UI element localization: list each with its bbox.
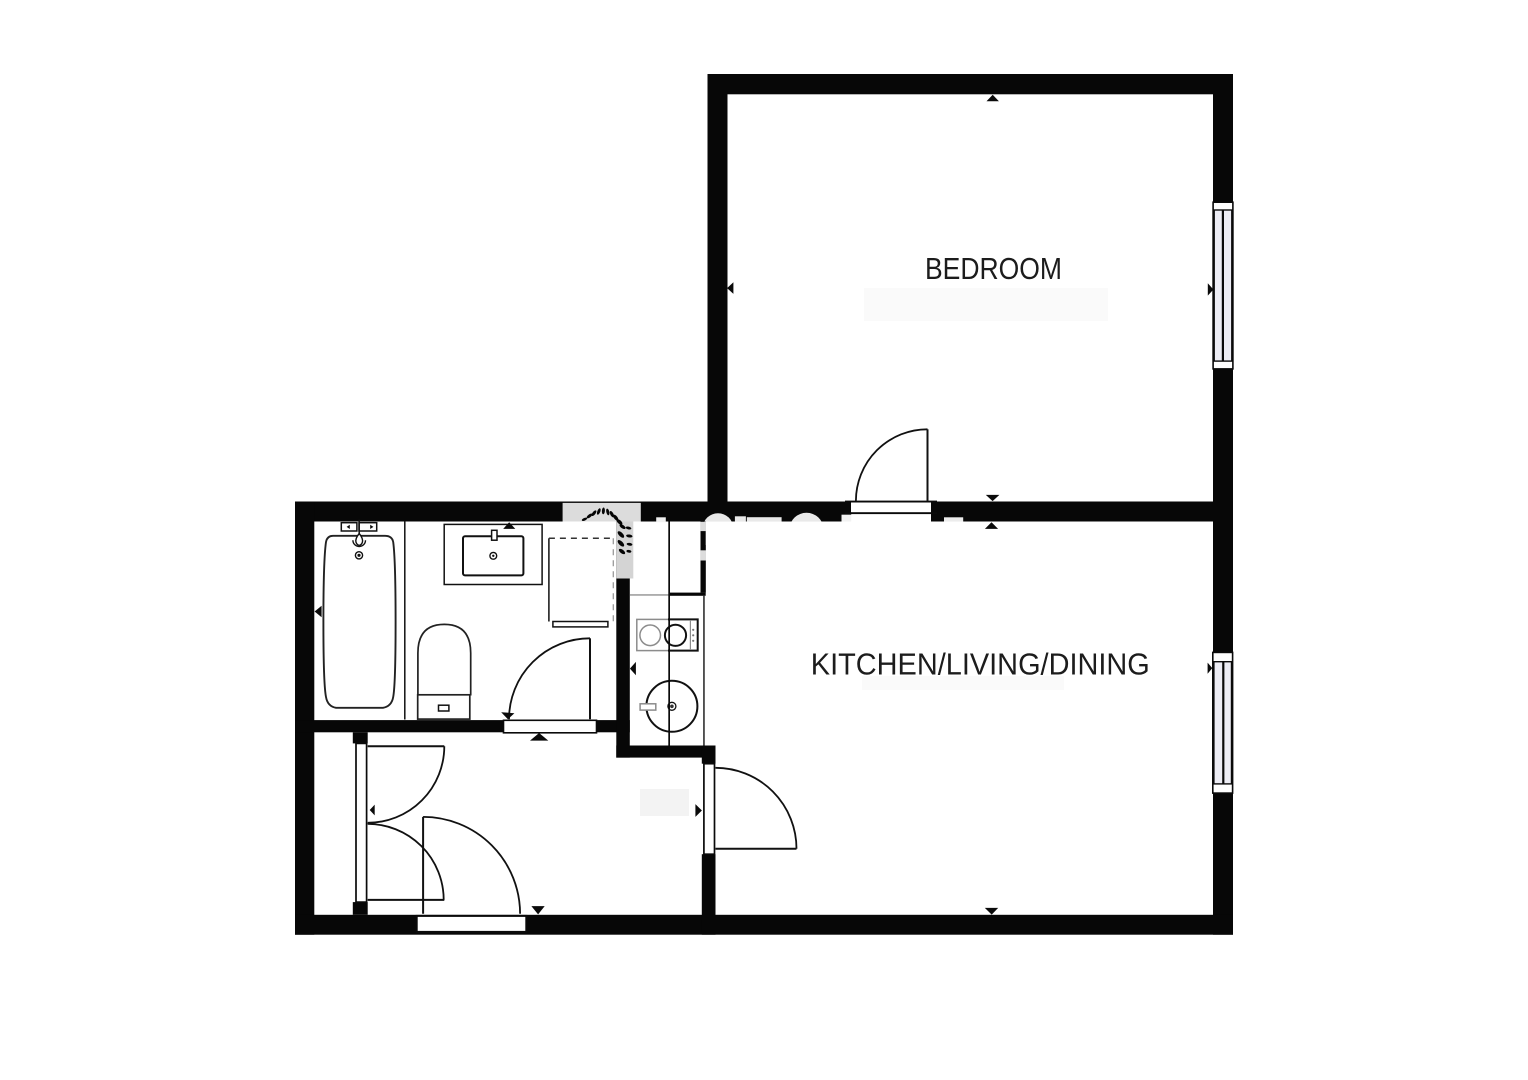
svg-text:BEDROOM: BEDROOM [925, 251, 1062, 286]
svg-text:KITCHEN/LIVING/DINING: KITCHEN/LIVING/DINING [811, 646, 1150, 681]
